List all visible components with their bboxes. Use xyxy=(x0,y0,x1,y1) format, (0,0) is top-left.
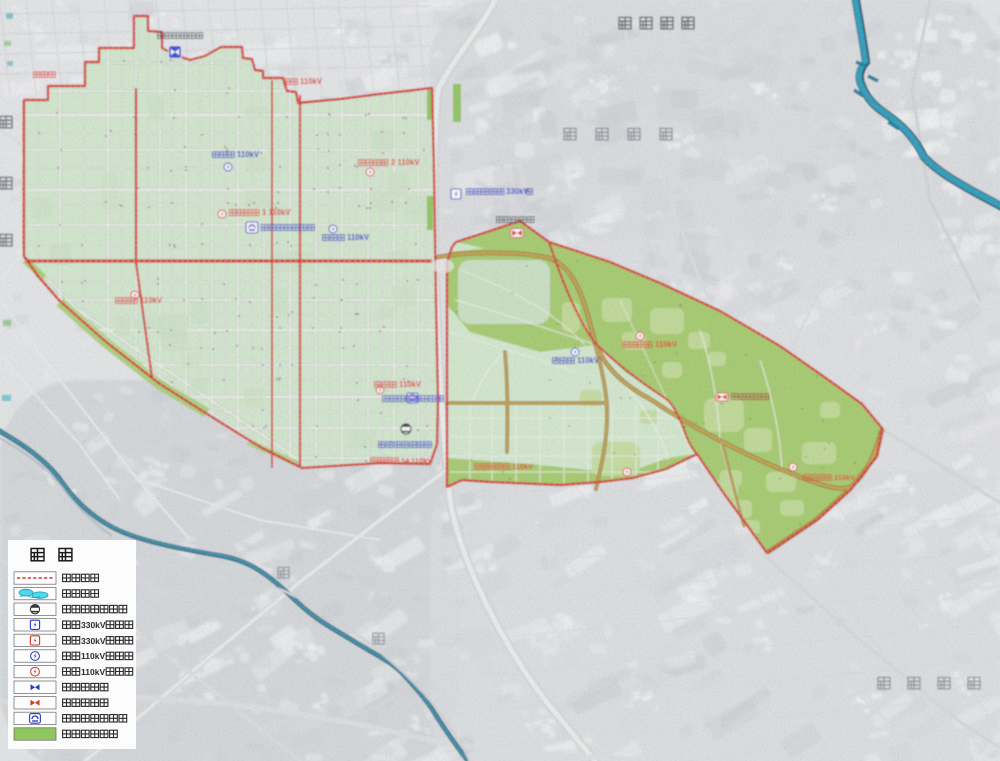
svg-text:110kV: 110kV xyxy=(81,667,105,677)
svg-text:330kV: 330kV xyxy=(81,636,106,646)
svg-text:330kV: 330kV xyxy=(81,620,106,630)
svg-text:110kV: 110kV xyxy=(81,651,105,661)
